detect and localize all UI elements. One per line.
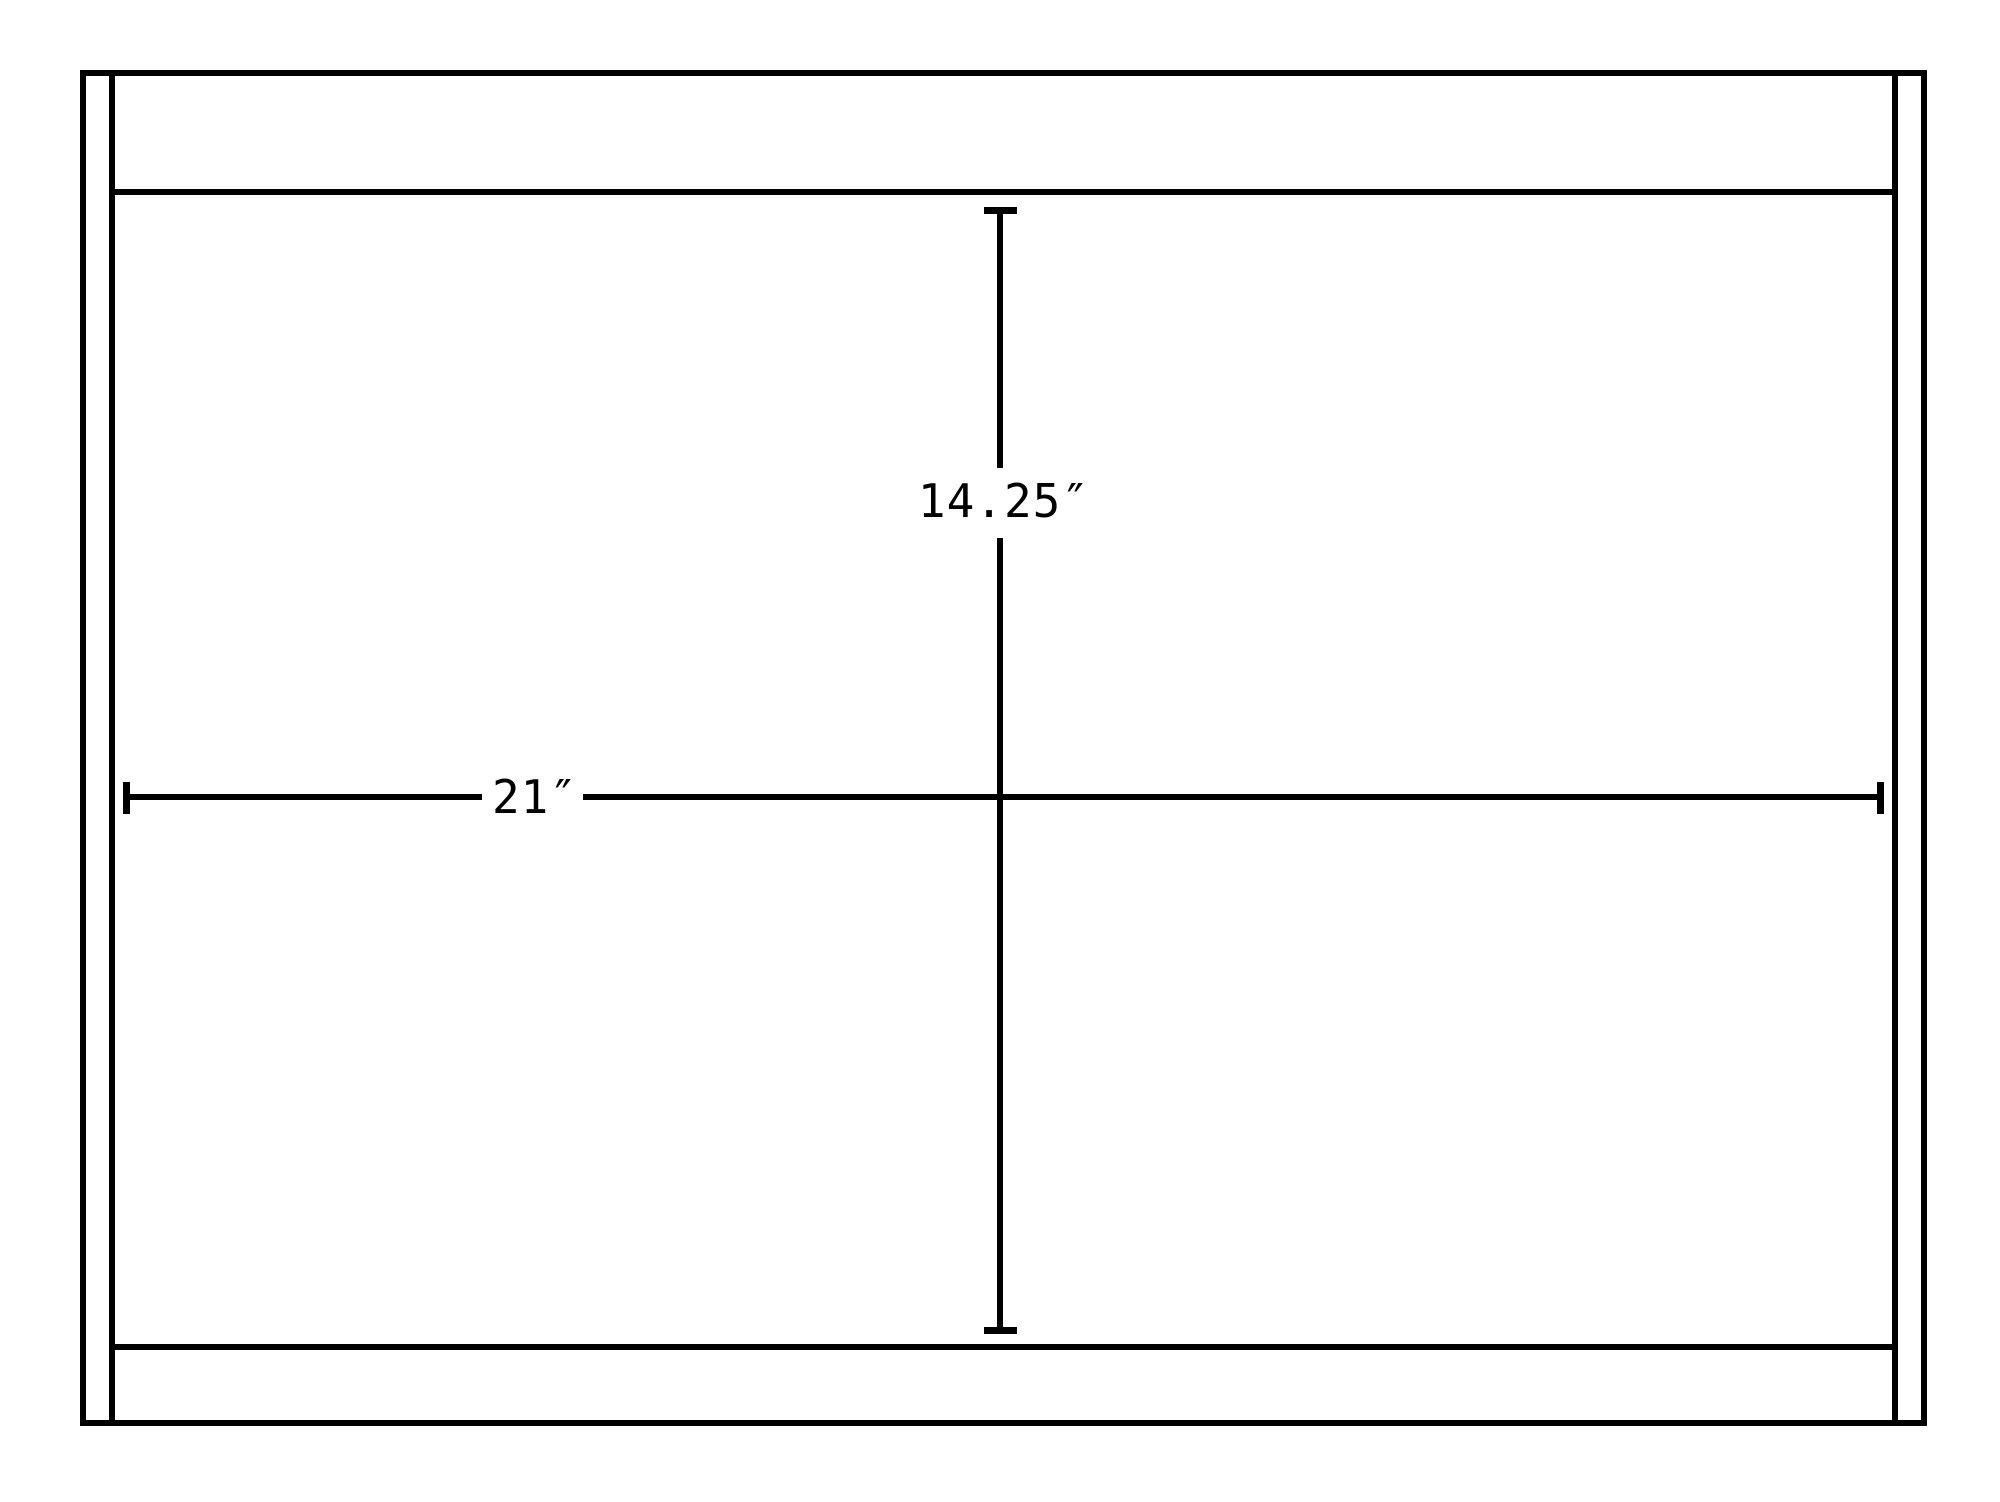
height-dimension-top-cap (984, 207, 1017, 214)
bottom-rail-line (112, 1344, 1898, 1350)
height-dimension-line-upper-segment (997, 207, 1003, 468)
height-dimension-label: 14.25″ (854, 470, 1154, 532)
width-dimension-right-cap (1877, 782, 1884, 814)
outline-outer-rect (80, 70, 1927, 1426)
left-side-panel-line (109, 70, 115, 1426)
height-dimension-bottom-cap (984, 1327, 1017, 1334)
width-dimension-line-right-segment (583, 794, 1884, 800)
height-dimension-line-lower-segment (997, 538, 1003, 1334)
right-side-panel-line (1892, 70, 1898, 1426)
dimension-diagram: 14.25″ 21″ (0, 0, 2000, 1502)
top-rail-line (112, 189, 1898, 195)
width-dimension-label: 21″ (385, 766, 685, 828)
width-dimension-left-cap (123, 782, 130, 814)
